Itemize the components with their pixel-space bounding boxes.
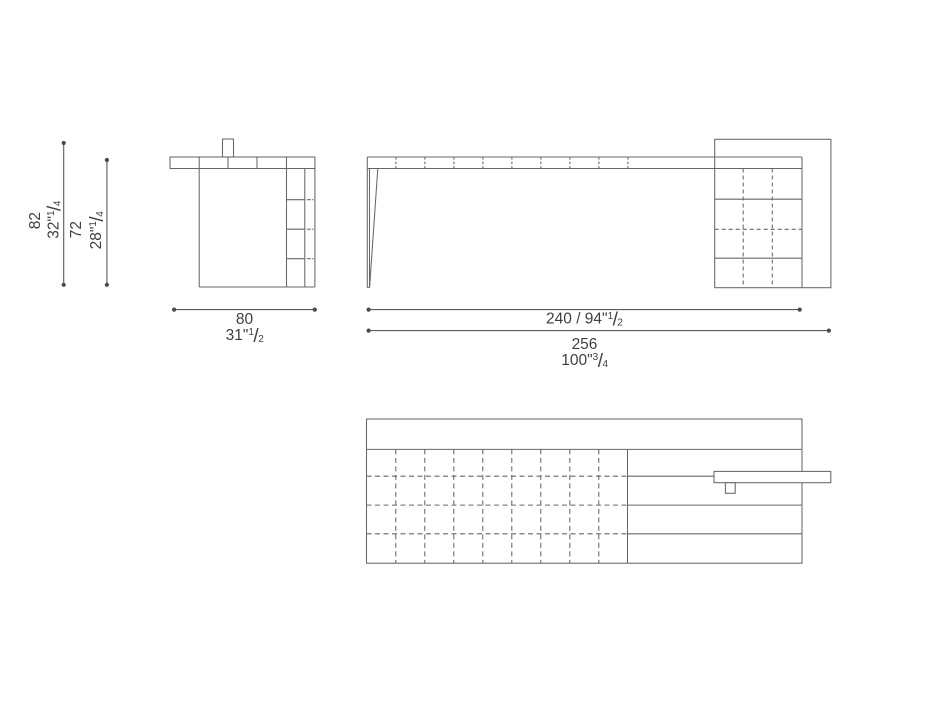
svg-text:256: 256 — [572, 336, 598, 353]
svg-text:80: 80 — [236, 311, 254, 328]
svg-text:82: 82 — [27, 212, 44, 229]
svg-text:32"1/4: 32"1/4 — [45, 200, 66, 239]
svg-text:31"1/2: 31"1/2 — [226, 326, 265, 347]
svg-text:72: 72 — [68, 221, 85, 238]
svg-text:28"1/4: 28"1/4 — [87, 211, 108, 250]
svg-text:240 / 94"1/2: 240 / 94"1/2 — [546, 310, 623, 331]
svg-text:100"3/4: 100"3/4 — [561, 351, 608, 372]
